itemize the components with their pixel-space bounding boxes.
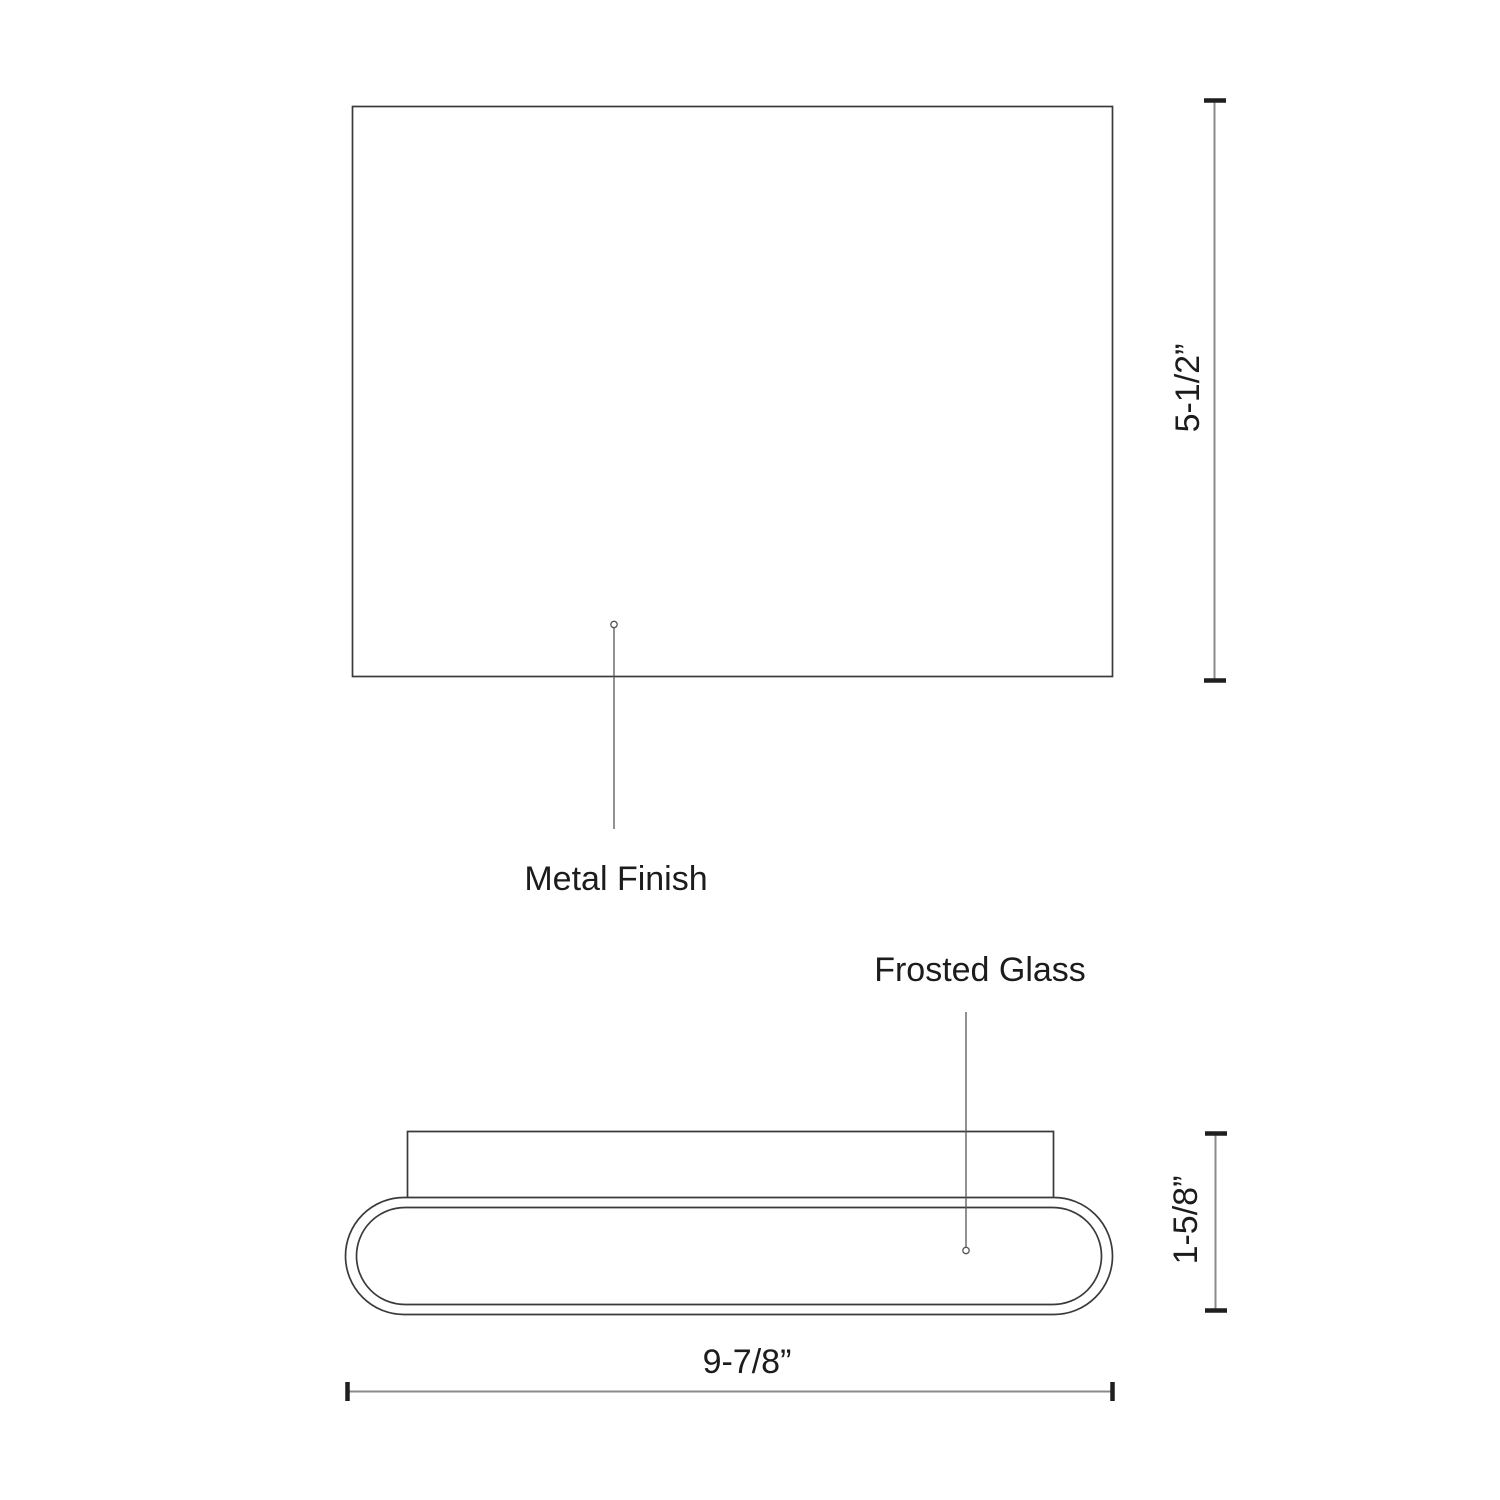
glass-inner-outline	[357, 1208, 1102, 1305]
mounting-plate-outline	[408, 1132, 1054, 1198]
technical-drawing-svg	[0, 0, 1500, 1500]
frosted-glass-label: Frosted Glass	[866, 950, 1094, 990]
depth-dimension-label: 1-5/8”	[1166, 1120, 1206, 1320]
height-dimension-label: 5-1/2”	[1168, 288, 1208, 488]
spec-drawing-canvas: Metal Finish Frosted Glass 5-1/2” 1-5/8”…	[0, 0, 1500, 1500]
width-dimension-label: 9-7/8”	[647, 1342, 847, 1382]
frosted-glass-callout-dot	[963, 1247, 969, 1253]
metal-finish-callout-dot	[611, 621, 617, 627]
glass-outer-outline	[346, 1198, 1113, 1315]
front-view-outline	[353, 107, 1113, 677]
metal-finish-label: Metal Finish	[516, 859, 716, 899]
